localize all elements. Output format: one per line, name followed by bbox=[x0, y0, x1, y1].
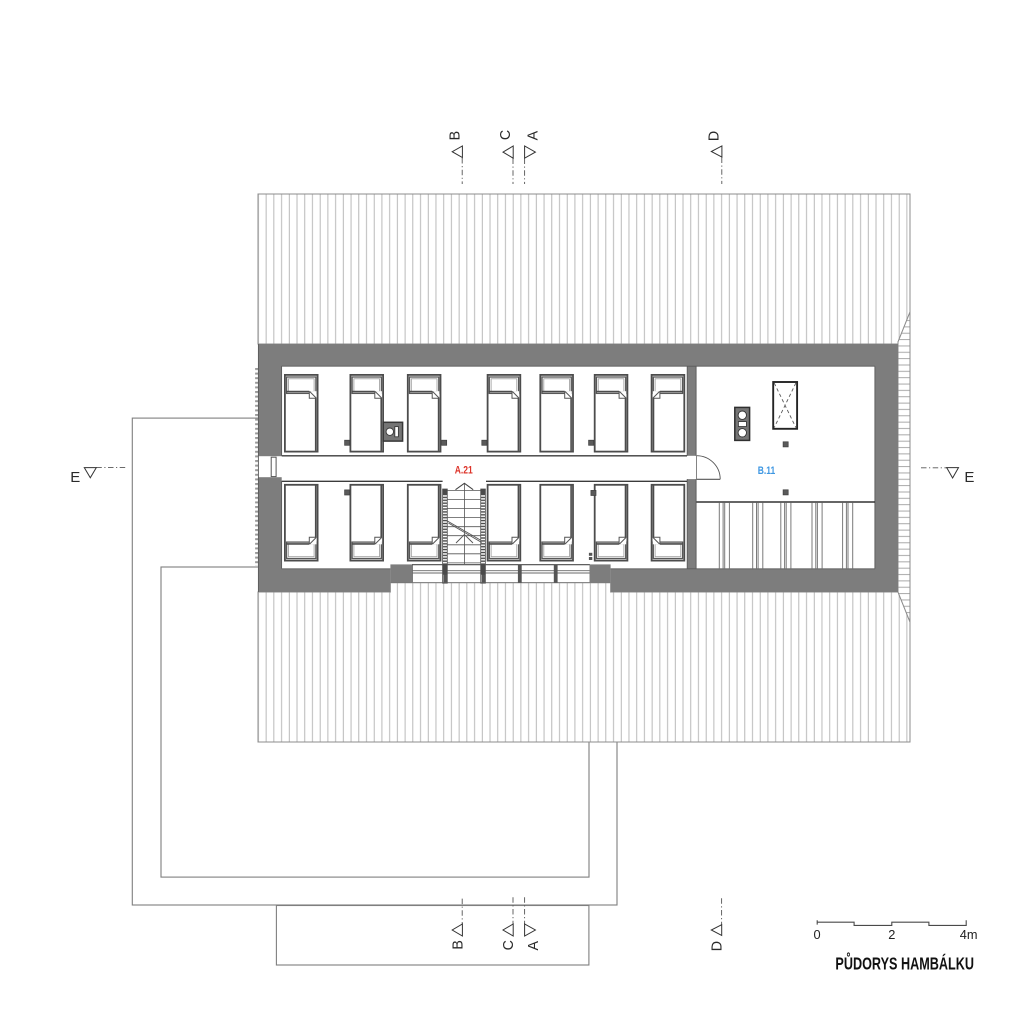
svg-text:B: B bbox=[447, 131, 463, 141]
svg-text:0: 0 bbox=[813, 927, 820, 942]
svg-text:A.21: A.21 bbox=[455, 465, 473, 477]
svg-text:D: D bbox=[707, 131, 723, 141]
svg-text:E: E bbox=[70, 469, 80, 486]
svg-text:D: D bbox=[710, 941, 726, 951]
svg-text:B.11: B.11 bbox=[758, 465, 776, 477]
svg-text:4m: 4m bbox=[960, 927, 978, 942]
svg-text:2: 2 bbox=[888, 927, 895, 942]
svg-text:PŮDORYS HAMBÁLKU: PŮDORYS HAMBÁLKU bbox=[835, 951, 974, 973]
svg-text:C: C bbox=[501, 940, 517, 950]
svg-text:B: B bbox=[450, 940, 466, 950]
svg-text:A: A bbox=[525, 130, 541, 140]
svg-text:A: A bbox=[526, 940, 542, 950]
svg-text:C: C bbox=[498, 130, 514, 140]
svg-text:E: E bbox=[964, 469, 974, 486]
